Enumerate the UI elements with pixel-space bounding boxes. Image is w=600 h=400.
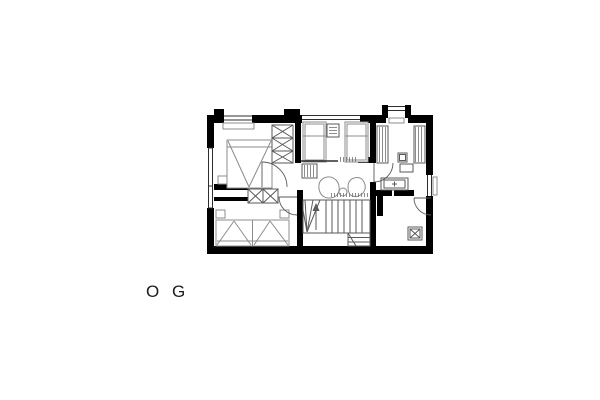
cistern-symbol	[400, 164, 413, 172]
single-bed-left-symbol	[303, 122, 326, 162]
stove-symbol	[398, 153, 407, 162]
floor-plan-drawing	[0, 0, 600, 400]
nightstand-symbol	[218, 176, 227, 184]
window-north	[223, 116, 254, 129]
nightstand-symbol	[280, 210, 289, 218]
room-sauna-ne	[377, 126, 425, 163]
bench-right-symbol	[414, 126, 425, 163]
wardrobe-symbol	[272, 125, 293, 163]
door-threshold	[338, 157, 358, 162]
single-bed-right-symbol	[345, 122, 368, 162]
room-bedroom-middle	[301, 122, 368, 162]
washbasin-symbol	[381, 178, 408, 190]
double-bed-symbol	[227, 140, 272, 188]
window-east	[428, 175, 438, 196]
double-bed-symbol	[216, 220, 289, 246]
window-band-middle-room	[302, 116, 360, 120]
nightstand-symbol	[327, 124, 339, 137]
room-bathroom-east	[381, 164, 413, 190]
hall-landing	[302, 164, 365, 198]
bench-left-symbol	[377, 126, 388, 163]
staircase	[303, 193, 370, 246]
dormer-window	[388, 107, 405, 124]
floor-label: O G	[146, 282, 189, 302]
wardrobe-symbol	[248, 189, 278, 203]
shaft-symbol	[408, 227, 422, 240]
handrail-hatch	[330, 193, 370, 197]
nightstand-symbol	[216, 210, 225, 218]
radiator-symbol	[302, 164, 317, 178]
room-bedroom-nw	[218, 125, 293, 188]
room-se	[408, 227, 422, 240]
window-west	[208, 148, 213, 208]
floor-plan-canvas	[0, 0, 600, 400]
